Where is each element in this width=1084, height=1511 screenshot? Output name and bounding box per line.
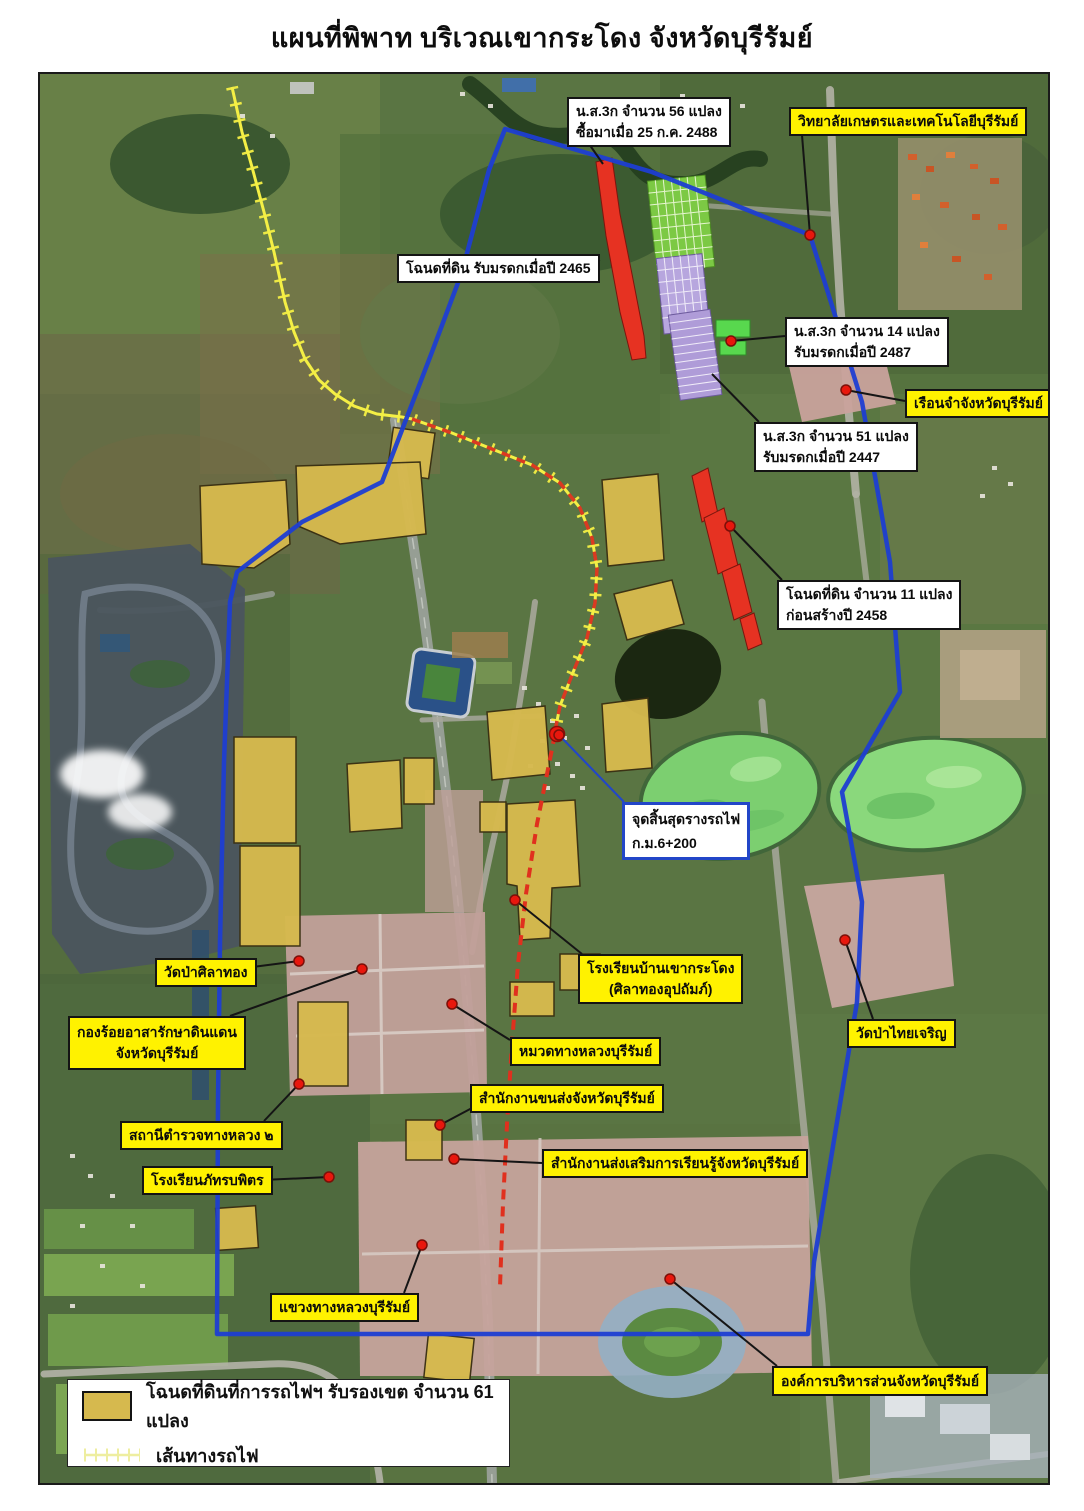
drag-strip (192, 930, 209, 1100)
northeast-village (898, 138, 1022, 310)
abj-stadium (598, 1286, 746, 1398)
page: แผนที่พิพาท บริเวณเขากระโดง จังหวัดบุรีร… (0, 0, 1084, 1511)
cloud (60, 750, 144, 798)
cloud (108, 794, 172, 830)
legend-label-railway: เส้นทางรถไฟ (156, 1441, 259, 1470)
map-title: แผนที่พิพาท บริเวณเขากระโดง จังหวัดบุรีร… (0, 16, 1084, 59)
legend: โฉนดที่ดินที่การรถไฟฯ รับรองเขต จำนวน 61… (67, 1379, 510, 1467)
legend-item-deeds: โฉนดที่ดินที่การรถไฟฯ รับรองเขต จำนวน 61… (82, 1377, 495, 1435)
gold-parcel-swatch (82, 1391, 132, 1421)
railway-end-dot (550, 727, 565, 742)
stadium-chang-arena (406, 648, 476, 718)
satellite-map: น.ส.3ก จำนวน 56 แปลงซื้อมาเมื่อ 25 ก.ค. … (38, 72, 1050, 1485)
legend-item-railway: เส้นทางรถไฟ (82, 1441, 495, 1470)
railway-line-symbol (82, 1447, 142, 1463)
small-green-parcels (716, 320, 750, 355)
map-artwork (40, 74, 1048, 1483)
legend-label-deeds: โฉนดที่ดินที่การรถไฟฯ รับรองเขต จำนวน 61… (146, 1377, 495, 1435)
